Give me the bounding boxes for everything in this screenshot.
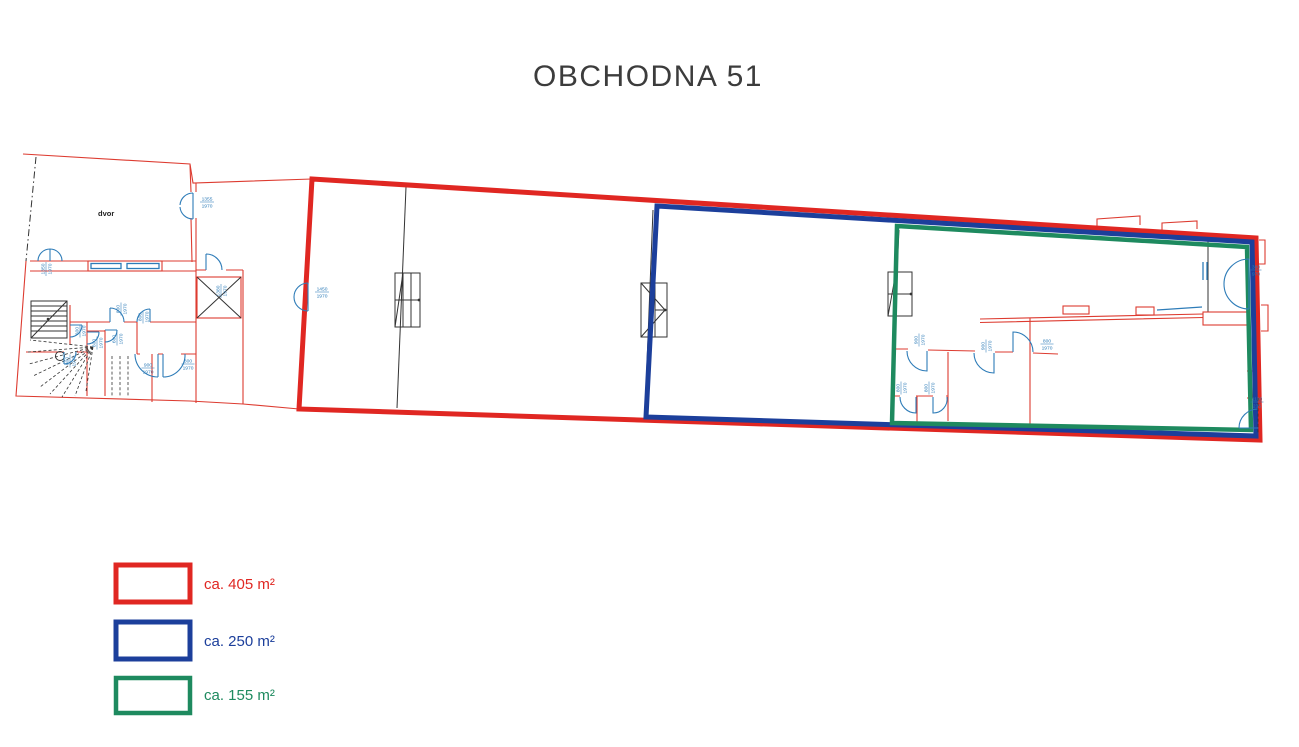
door-dimension: 8001970 <box>116 303 129 316</box>
door-dimension: 8001970 <box>65 355 78 368</box>
svg-text:970: 970 <box>1252 271 1260 277</box>
window-strip <box>1157 307 1202 310</box>
shaft <box>197 277 241 318</box>
svg-text:1970: 1970 <box>222 285 228 296</box>
svg-text:1970: 1970 <box>98 337 104 348</box>
svg-text:1970: 1970 <box>1042 345 1053 351</box>
svg-text:1355: 1355 <box>202 197 213 203</box>
door-swing <box>907 351 927 371</box>
svg-text:1970: 1970 <box>144 311 150 322</box>
legend-label: ca. 155 m² <box>204 687 275 704</box>
svg-text:1350: 1350 <box>41 263 47 274</box>
svg-text:1970: 1970 <box>987 340 993 351</box>
svg-text:1970: 1970 <box>71 355 77 366</box>
page-title: OBCHODNA 51 <box>533 60 763 93</box>
staircase-straight <box>31 301 67 338</box>
door-dimension: 9001970 <box>914 334 927 347</box>
svg-text:800: 800 <box>896 384 902 392</box>
svg-text:600: 600 <box>92 339 98 347</box>
svg-text:1970: 1970 <box>902 382 908 393</box>
svg-text:800: 800 <box>116 305 122 313</box>
legend-item: ca. 405 m² <box>116 565 275 602</box>
partition-lines <box>397 187 1208 414</box>
svg-text:1380: 1380 <box>216 285 222 296</box>
courtyard-label: dvor <box>98 209 114 218</box>
door-dimension: 13551970 <box>200 197 214 210</box>
svg-text:235: 235 <box>1253 403 1261 409</box>
door-dimension: 13501970 <box>41 262 54 276</box>
door-dimension: 14501970 <box>315 287 329 300</box>
wall-pier <box>1203 312 1249 325</box>
svg-text:800: 800 <box>924 384 930 392</box>
door-dimension: 8001970 <box>896 382 909 395</box>
courtyard-window-band <box>88 261 162 271</box>
svg-text:900: 900 <box>981 342 987 350</box>
svg-text:1970: 1970 <box>920 334 926 345</box>
svg-text:800: 800 <box>1043 339 1051 345</box>
window-strip <box>1203 262 1207 280</box>
door-dimension: 8001970 <box>1041 339 1054 352</box>
door-swing <box>206 254 222 270</box>
building-outline <box>16 154 312 409</box>
floor-plan: dvor <box>16 154 1268 440</box>
svg-text:800: 800 <box>138 313 144 321</box>
door-dimension: 8001970 <box>138 311 151 324</box>
svg-text:1970: 1970 <box>930 382 936 393</box>
door-swing <box>38 249 62 261</box>
legend-swatch <box>116 565 190 602</box>
window-mullion-3 <box>888 272 912 316</box>
svg-text:1970: 1970 <box>81 325 87 336</box>
legend-swatch <box>116 678 190 713</box>
svg-text:1970: 1970 <box>183 365 194 371</box>
door-dimension: 8001970 <box>924 382 937 395</box>
svg-text:1970: 1970 <box>122 303 128 314</box>
floor-plan-canvas: OBCHODNA 51 dvor <box>0 0 1299 747</box>
window-mullion-1 <box>395 273 420 327</box>
legend-item: ca. 250 m² <box>116 622 275 659</box>
svg-text:900: 900 <box>914 336 920 344</box>
svg-text:1970: 1970 <box>143 369 154 375</box>
svg-text:1100: 1100 <box>1252 397 1263 403</box>
svg-text:380: 380 <box>1252 265 1260 271</box>
property-line <box>26 157 36 261</box>
door-swing <box>180 193 193 219</box>
ramp-hatch <box>112 356 128 396</box>
legend-label: ca. 250 m² <box>204 633 275 650</box>
svg-text:900: 900 <box>144 363 152 369</box>
door-dimension: 6001970 <box>92 337 105 350</box>
door-dimension: 6001970 <box>112 333 125 346</box>
svg-text:800: 800 <box>184 359 192 365</box>
svg-text:1970: 1970 <box>47 263 53 274</box>
svg-text:800: 800 <box>65 357 71 365</box>
svg-text:600: 600 <box>75 327 81 335</box>
door-dimension: 9001970 <box>981 340 994 353</box>
svg-text:1450: 1450 <box>317 287 328 293</box>
area-outline-155 <box>892 226 1251 430</box>
svg-text:600: 600 <box>112 335 118 343</box>
legend-item: ca. 155 m² <box>116 678 275 713</box>
door-dimension: 8001970 <box>182 359 195 372</box>
legend: ca. 405 m² ca. 250 m² ca. 155 m² <box>116 565 275 713</box>
legend-label: ca. 405 m² <box>204 576 275 593</box>
svg-text:1970: 1970 <box>317 293 328 299</box>
door-swing <box>900 397 916 413</box>
svg-text:1970: 1970 <box>202 203 213 209</box>
left-wing-rooms <box>26 305 196 402</box>
door-swing <box>933 397 947 413</box>
staircase-winding <box>28 340 93 397</box>
door-swing <box>974 353 994 373</box>
svg-text:1970: 1970 <box>118 333 124 344</box>
scanned-floor-plan-page: OBCHODNA 51 dvor <box>0 0 1299 747</box>
legend-swatch <box>116 622 190 659</box>
